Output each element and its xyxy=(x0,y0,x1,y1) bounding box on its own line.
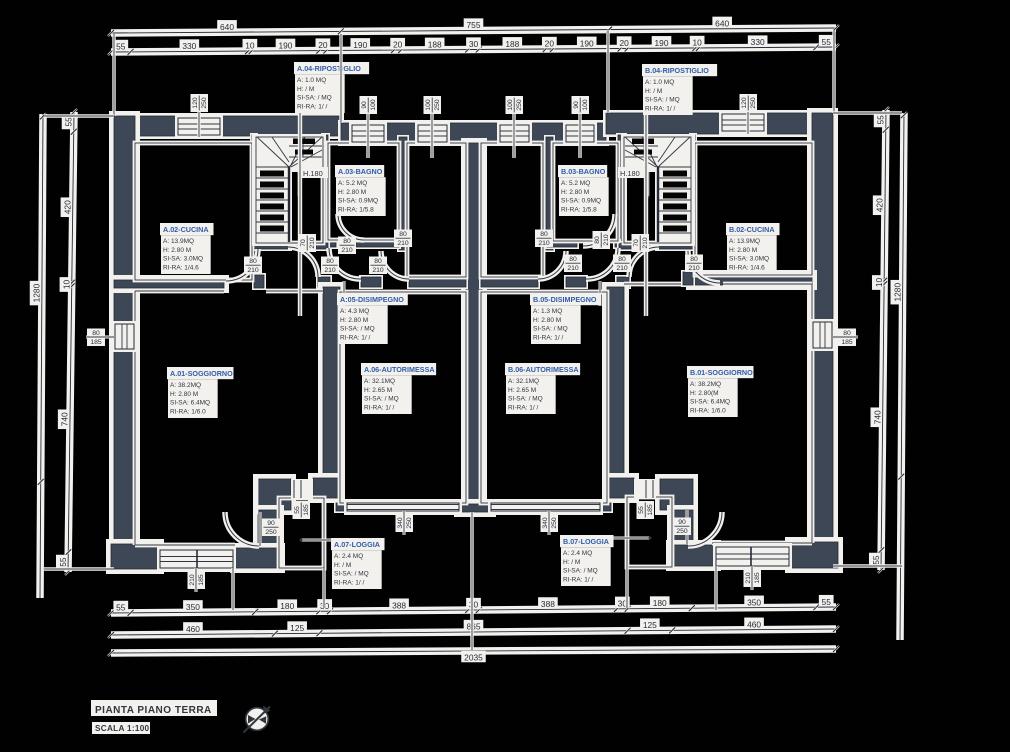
svg-text:80: 80 xyxy=(374,258,382,265)
svg-text:188: 188 xyxy=(505,39,519,49)
svg-text:740: 740 xyxy=(872,410,882,424)
svg-text:250: 250 xyxy=(434,99,441,111)
svg-text:SI-SA: 6.4MQ: SI-SA: 6.4MQ xyxy=(690,399,730,406)
svg-text:80: 80 xyxy=(343,238,351,245)
svg-text:B.07-LOGGIA: B.07-LOGGIA xyxy=(563,537,609,546)
svg-text:A: 13.9MQ: A: 13.9MQ xyxy=(729,238,760,245)
svg-text:H: 2.80 M: H: 2.80 M xyxy=(729,247,757,254)
svg-text:90: 90 xyxy=(573,101,580,109)
svg-text:A.01-SOGGIORNO: A.01-SOGGIORNO xyxy=(170,369,233,378)
svg-text:RI-RA: 1/ /: RI-RA: 1/ / xyxy=(533,334,564,341)
svg-text:SI-SA: / MQ: SI-SA: / MQ xyxy=(563,568,598,575)
svg-text:80: 80 xyxy=(249,258,257,265)
svg-text:90: 90 xyxy=(361,101,368,109)
svg-text:190: 190 xyxy=(580,38,594,48)
svg-text:250: 250 xyxy=(750,97,757,109)
svg-text:80: 80 xyxy=(618,256,626,263)
svg-text:A.06-AUTORIMESSA: A.06-AUTORIMESSA xyxy=(364,365,435,374)
svg-text:55: 55 xyxy=(58,557,68,567)
svg-text:SI-SA: / MQ: SI-SA: / MQ xyxy=(508,396,543,403)
svg-text:B.05-DISIMPEGNO: B.05-DISIMPEGNO xyxy=(533,295,597,304)
svg-text:185: 185 xyxy=(647,504,654,516)
svg-text:55: 55 xyxy=(638,506,645,514)
svg-text:A: 4.3 MQ: A: 4.3 MQ xyxy=(340,308,369,315)
svg-text:20: 20 xyxy=(318,40,328,50)
svg-text:188: 188 xyxy=(428,39,442,49)
svg-text:SI-SA: / MQ: SI-SA: / MQ xyxy=(340,326,375,333)
svg-text:100: 100 xyxy=(425,99,432,111)
svg-text:180: 180 xyxy=(653,598,667,608)
svg-text:H: / M: H: / M xyxy=(334,562,351,569)
svg-text:H.180: H.180 xyxy=(303,169,323,178)
svg-text:A: 2.4 MQ: A: 2.4 MQ xyxy=(334,553,363,560)
svg-text:B.02-CUCINA: B.02-CUCINA xyxy=(729,225,775,234)
svg-text:250: 250 xyxy=(201,97,208,109)
svg-text:210: 210 xyxy=(372,267,384,274)
svg-text:10: 10 xyxy=(61,280,71,290)
svg-text:330: 330 xyxy=(182,41,196,51)
svg-text:10: 10 xyxy=(692,38,702,48)
svg-text:SI-SA: 0.9MQ: SI-SA: 0.9MQ xyxy=(561,198,601,205)
svg-text:185: 185 xyxy=(303,504,310,516)
svg-text:A: 5.2 MQ: A: 5.2 MQ xyxy=(338,180,367,187)
svg-text:B.04-RIPOSTIGLIO: B.04-RIPOSTIGLIO xyxy=(645,66,709,75)
svg-text:H: 2.80 M: H: 2.80 M xyxy=(170,391,198,398)
svg-text:1280: 1280 xyxy=(32,283,42,302)
svg-text:A: 5.2 MQ: A: 5.2 MQ xyxy=(561,180,590,187)
svg-text:640: 640 xyxy=(715,18,729,28)
svg-text:B.01-SOGGIORNO: B.01-SOGGIORNO xyxy=(690,368,753,377)
svg-text:SCALA 1:100: SCALA 1:100 xyxy=(95,724,150,733)
svg-text:SI-SA: / MQ: SI-SA: / MQ xyxy=(334,571,369,578)
svg-text:H: / M: H: / M xyxy=(645,88,662,95)
svg-text:185: 185 xyxy=(198,574,205,586)
svg-text:H: 2.80 M: H: 2.80 M xyxy=(338,189,366,196)
svg-text:185: 185 xyxy=(841,339,853,346)
svg-text:H: 2.80 M: H: 2.80 M xyxy=(163,247,191,254)
svg-text:PIANTA PIANO TERRA: PIANTA PIANO TERRA xyxy=(95,705,212,716)
svg-text:RI-RA: 1/ /: RI-RA: 1/ / xyxy=(508,404,539,411)
svg-text:388: 388 xyxy=(541,599,555,609)
svg-text:A.02-CUCINA: A.02-CUCINA xyxy=(163,225,209,234)
svg-text:80: 80 xyxy=(326,258,334,265)
svg-text:A: 13.9MQ: A: 13.9MQ xyxy=(163,238,194,245)
svg-text:640: 640 xyxy=(220,22,234,32)
svg-text:RI-RA: 1/6.0: RI-RA: 1/6.0 xyxy=(170,408,206,415)
svg-text:H: / M: H: / M xyxy=(563,559,580,566)
svg-text:20: 20 xyxy=(393,40,403,50)
svg-text:55: 55 xyxy=(871,555,881,565)
svg-text:80: 80 xyxy=(569,256,577,263)
svg-text:RI-RA: 1/ /: RI-RA: 1/ / xyxy=(334,579,365,586)
svg-text:2035: 2035 xyxy=(464,653,483,663)
svg-text:A: 38.2MQ: A: 38.2MQ xyxy=(170,382,201,389)
svg-text:RI-RA: 1/ /: RI-RA: 1/ / xyxy=(563,576,594,583)
svg-text:10: 10 xyxy=(874,278,884,288)
svg-text:SI-SA: 0.9MQ: SI-SA: 0.9MQ xyxy=(338,198,378,205)
svg-text:A: 38.2MQ: A: 38.2MQ xyxy=(690,381,721,388)
svg-text:460: 460 xyxy=(747,619,761,629)
svg-text:80: 80 xyxy=(594,236,601,244)
svg-text:SI-SA: 3.0MQ: SI-SA: 3.0MQ xyxy=(729,256,769,263)
svg-text:55: 55 xyxy=(116,603,126,613)
svg-text:30: 30 xyxy=(469,39,479,49)
svg-text:RI-RA: 1/ /: RI-RA: 1/ / xyxy=(340,334,371,341)
svg-text:A:05-DISIMPEGNO: A:05-DISIMPEGNO xyxy=(340,295,404,304)
svg-text:388: 388 xyxy=(392,600,406,610)
svg-text:330: 330 xyxy=(751,37,765,47)
svg-text:H: 2.80 M: H: 2.80 M xyxy=(561,189,589,196)
svg-text:A.04-RIPOSTIGLIO: A.04-RIPOSTIGLIO xyxy=(297,64,361,73)
svg-text:SI-SA: 6.4MQ: SI-SA: 6.4MQ xyxy=(170,400,210,407)
svg-text:180: 180 xyxy=(280,601,294,611)
svg-text:210: 210 xyxy=(538,240,550,247)
svg-text:190: 190 xyxy=(353,40,367,50)
svg-text:210: 210 xyxy=(309,237,316,249)
svg-text:80: 80 xyxy=(690,256,698,263)
svg-text:55: 55 xyxy=(294,506,301,514)
svg-text:210: 210 xyxy=(603,234,610,246)
svg-text:RI-RA: 1/ /: RI-RA: 1/ / xyxy=(364,404,395,411)
svg-text:A.03-BAGNO: A.03-BAGNO xyxy=(338,167,383,176)
svg-text:250: 250 xyxy=(265,529,277,536)
svg-text:H: / M: H: / M xyxy=(297,86,314,93)
svg-text:RI-RA: 1/5.8: RI-RA: 1/5.8 xyxy=(338,206,374,213)
svg-text:RI-RA: 1/5.8: RI-RA: 1/5.8 xyxy=(561,206,597,213)
svg-text:80: 80 xyxy=(540,231,548,238)
svg-text:740: 740 xyxy=(60,412,70,426)
svg-text:250: 250 xyxy=(406,517,413,529)
svg-text:SI-SA: / MQ: SI-SA: / MQ xyxy=(533,326,568,333)
svg-text:H.180: H.180 xyxy=(620,169,640,178)
svg-text:20: 20 xyxy=(619,38,629,48)
svg-text:RI-RA: 1/4.6: RI-RA: 1/4.6 xyxy=(729,264,765,271)
svg-text:210: 210 xyxy=(616,265,628,272)
svg-text:185: 185 xyxy=(90,339,102,346)
svg-text:210: 210 xyxy=(247,267,259,274)
svg-text:RI-RA: 1/ /: RI-RA: 1/ / xyxy=(297,103,328,110)
svg-text:190: 190 xyxy=(655,38,669,48)
svg-text:185: 185 xyxy=(754,572,761,584)
svg-text:55: 55 xyxy=(876,115,886,125)
svg-text:1280: 1280 xyxy=(892,283,902,302)
svg-text:125: 125 xyxy=(290,623,304,633)
svg-text:SI-SA: 3.0MQ: SI-SA: 3.0MQ xyxy=(163,256,203,263)
svg-text:100: 100 xyxy=(370,99,377,111)
svg-text:SI-SA: / MQ: SI-SA: / MQ xyxy=(297,95,332,102)
svg-text:210: 210 xyxy=(341,247,353,254)
svg-text:A: 2.4 MQ: A: 2.4 MQ xyxy=(563,550,592,557)
svg-text:SI-SA: / MQ: SI-SA: / MQ xyxy=(645,97,680,104)
svg-text:A: 32.1MQ: A: 32.1MQ xyxy=(508,378,539,385)
svg-text:190: 190 xyxy=(278,40,292,50)
svg-text:460: 460 xyxy=(186,624,200,634)
svg-text:55: 55 xyxy=(116,42,126,52)
svg-text:210: 210 xyxy=(567,265,579,272)
svg-text:RI-RA: 1/6.0: RI-RA: 1/6.0 xyxy=(690,407,726,414)
svg-text:120: 120 xyxy=(192,97,199,109)
svg-text:120: 120 xyxy=(741,97,748,109)
svg-text:250: 250 xyxy=(676,528,688,535)
svg-text:B.03-BAGNO: B.03-BAGNO xyxy=(561,167,606,176)
svg-text:250: 250 xyxy=(551,517,558,529)
svg-text:70: 70 xyxy=(300,239,307,247)
svg-text:80: 80 xyxy=(399,231,407,238)
svg-text:210: 210 xyxy=(688,265,700,272)
svg-text:A: 1.0 MQ: A: 1.0 MQ xyxy=(297,77,326,84)
svg-text:20: 20 xyxy=(545,39,555,49)
svg-text:210: 210 xyxy=(324,267,336,274)
svg-text:55: 55 xyxy=(822,597,832,607)
svg-text:100: 100 xyxy=(507,99,514,111)
svg-text:90: 90 xyxy=(267,520,275,527)
svg-text:H: 2.80(M: H: 2.80(M xyxy=(690,390,719,397)
svg-text:420: 420 xyxy=(875,198,885,212)
svg-text:100: 100 xyxy=(582,99,589,111)
svg-text:10: 10 xyxy=(245,41,255,51)
svg-text:RI-RA: 1/ /: RI-RA: 1/ / xyxy=(645,105,676,112)
svg-text:H: 2.65 M: H: 2.65 M xyxy=(364,387,392,394)
svg-text:RI-RA: 1/4.6: RI-RA: 1/4.6 xyxy=(163,264,199,271)
svg-text:755: 755 xyxy=(467,20,481,30)
svg-text:350: 350 xyxy=(186,602,200,612)
svg-text:420: 420 xyxy=(62,200,72,214)
svg-text:90: 90 xyxy=(678,519,686,526)
svg-text:H: 2.65 M: H: 2.65 M xyxy=(508,387,536,394)
svg-text:A: 1.0 MQ: A: 1.0 MQ xyxy=(645,79,674,86)
svg-text:55: 55 xyxy=(64,117,74,127)
svg-text:210: 210 xyxy=(397,240,409,247)
svg-text:A: 1.3 MQ: A: 1.3 MQ xyxy=(533,308,562,315)
svg-text:250: 250 xyxy=(516,99,523,111)
svg-text:B.06-AUTORIMESSA: B.06-AUTORIMESSA xyxy=(508,365,579,374)
svg-text:350: 350 xyxy=(747,597,761,607)
svg-text:A.07-LOGGIA: A.07-LOGGIA xyxy=(334,540,380,549)
svg-text:210: 210 xyxy=(642,237,649,249)
svg-text:H: 2.80 M: H: 2.80 M xyxy=(340,317,368,324)
svg-text:SI-SA: / MQ: SI-SA: / MQ xyxy=(364,396,399,403)
svg-text:H: 2.80 M: H: 2.80 M xyxy=(533,317,561,324)
svg-text:A: 32.1MQ: A: 32.1MQ xyxy=(364,378,395,385)
svg-text:70: 70 xyxy=(633,239,640,247)
svg-text:55: 55 xyxy=(822,37,832,47)
svg-text:125: 125 xyxy=(643,620,657,630)
